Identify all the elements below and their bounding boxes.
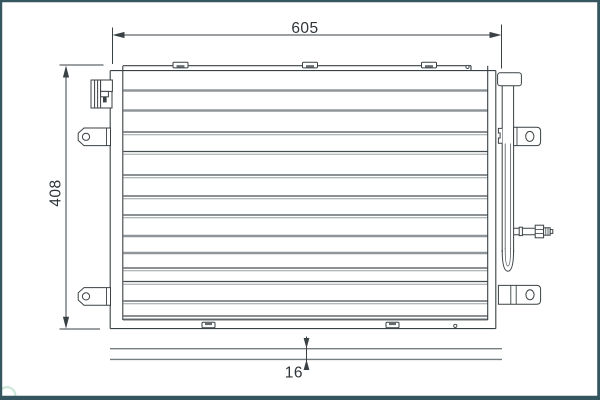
arrowhead-right-icon [490,32,502,38]
drier-clamp [498,128,502,143]
mounting-clip-inner [177,65,185,67]
top-clips [173,62,437,68]
inlet-fitting-block [91,80,112,108]
pin-hole-bottom-icon [454,324,457,327]
dimension-height-label: 408 [48,179,65,206]
mounting-clip-inner [306,65,314,67]
technical-drawing-page: 605 408 16 [0,0,600,400]
pin-hole-top-icon [466,65,469,68]
arrowhead-down-icon [63,317,69,329]
bracket-top-left [78,128,110,146]
bracket-hole-icon [526,131,534,141]
condenser-diagram: 605 408 16 [0,0,600,400]
drier-cap [498,73,522,86]
mounting-clip-inner [425,65,433,67]
bracket-hole-icon [82,133,89,140]
bracket-bottom-left [78,288,110,306]
mounting-clip-inner [389,323,396,325]
arrowhead-up-icon [63,66,69,78]
bracket-hole-icon [526,290,534,300]
valve-tip [544,228,551,235]
dimension-width: 605 [113,20,502,69]
receiver-drier [498,73,522,271]
arrowhead-down-icon [304,338,310,349]
valve-nut [535,225,543,238]
core-tubes [124,91,488,319]
dimension-depth-label: 16 [285,365,303,382]
bracket-hole-icon [82,293,89,300]
bottom-clips [202,322,399,328]
condenser-outline [110,66,496,329]
frame-border [0,0,600,400]
mounting-clip-inner [205,323,212,325]
service-valve [514,225,553,238]
arrowhead-left-icon [113,32,125,38]
dimension-width-label: 605 [291,20,318,37]
arrowhead-up-icon [304,360,310,370]
bracket-top-right [514,127,541,145]
bracket-bottom-right [498,285,540,304]
